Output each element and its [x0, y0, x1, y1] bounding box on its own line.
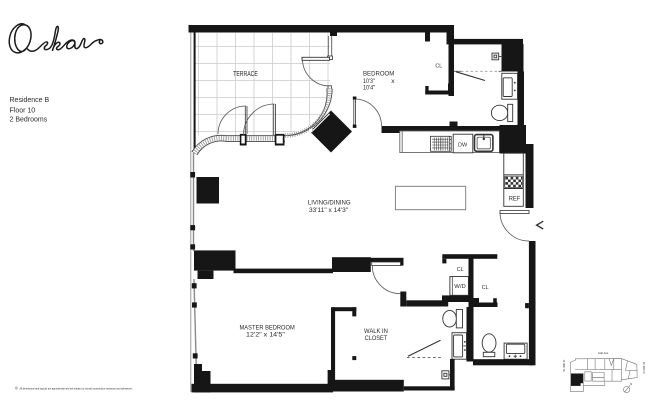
svg-text:Residence B: Residence B: [10, 97, 50, 104]
svg-text:REF: REF: [509, 195, 521, 202]
svg-text:All dimensions and layouts are: All dimensions and layouts are approxima…: [20, 386, 133, 390]
svg-text:LIVING/DINING: LIVING/DINING: [308, 200, 351, 207]
svg-text:10'4": 10'4": [363, 85, 376, 92]
svg-text:BEDROOM: BEDROOM: [363, 70, 394, 77]
svg-text:12'2" x 14'5": 12'2" x 14'5": [246, 331, 286, 338]
svg-text:CLOSET: CLOSET: [365, 335, 388, 342]
svg-text:W. 43th St.: W. 43th St.: [563, 359, 566, 372]
svg-text:CL: CL: [457, 267, 464, 273]
svg-text:33'11" x 14'3": 33'11" x 14'3": [309, 207, 349, 214]
svg-text:CL: CL: [482, 285, 489, 291]
svg-text:TERRACE: TERRACE: [233, 71, 258, 78]
svg-text:W. 44th St.: W. 44th St.: [642, 362, 645, 375]
svg-text:CL: CL: [435, 63, 442, 69]
svg-text:N: N: [630, 382, 632, 386]
svg-text:W/D: W/D: [454, 284, 465, 290]
svg-text:11th Ave.: 11th Ave.: [598, 351, 609, 355]
svg-text:Floor 10: Floor 10: [10, 108, 36, 115]
svg-text:DW: DW: [458, 143, 468, 149]
svg-text:WALK IN: WALK IN: [364, 328, 388, 335]
svg-text:2 Bedrooms: 2 Bedrooms: [10, 117, 48, 124]
